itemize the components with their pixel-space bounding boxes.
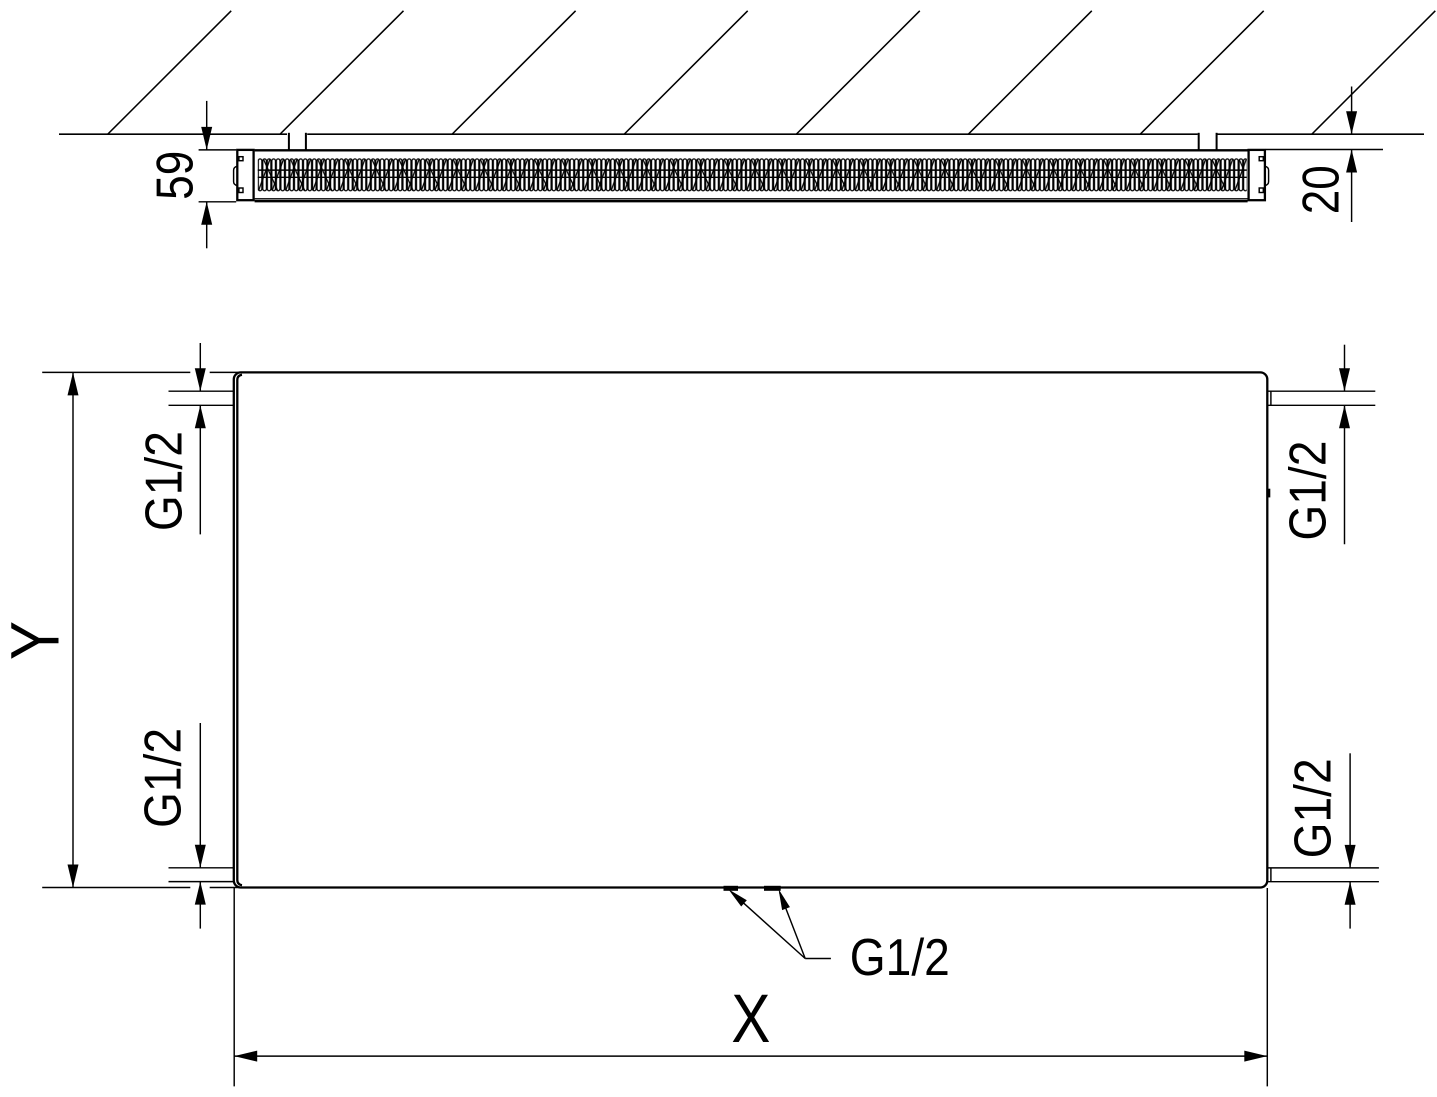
svg-text:59: 59 [145, 151, 203, 200]
svg-text:X: X [731, 980, 770, 1057]
svg-text:G1/2: G1/2 [1284, 758, 1342, 858]
svg-text:G1/2: G1/2 [1279, 441, 1337, 541]
svg-text:G1/2: G1/2 [135, 431, 193, 531]
svg-text:G1/2: G1/2 [134, 728, 192, 828]
svg-text:20: 20 [1291, 165, 1349, 214]
svg-text:Y: Y [0, 621, 73, 660]
svg-text:G1/2: G1/2 [850, 928, 950, 986]
